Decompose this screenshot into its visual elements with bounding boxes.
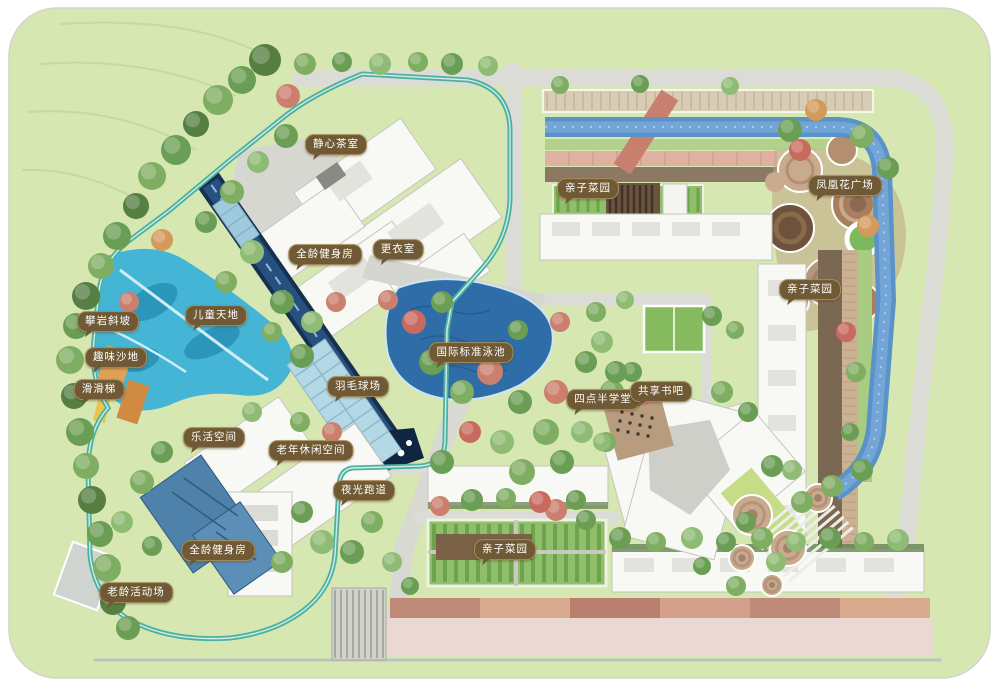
planting-plot [436, 534, 532, 560]
pink-paving-band [545, 151, 777, 166]
family-garden-top [553, 183, 703, 218]
site-plan: 静心茶室全龄健身房更衣室攀岩斜坡儿童天地趣味沙地滑滑梯国际标准泳池羽毛球场乐活空… [0, 0, 1000, 686]
south-band [332, 588, 933, 660]
family-garden-south [428, 520, 606, 586]
site-plan-illustration [0, 0, 1000, 686]
north-residence-slab [540, 214, 772, 260]
